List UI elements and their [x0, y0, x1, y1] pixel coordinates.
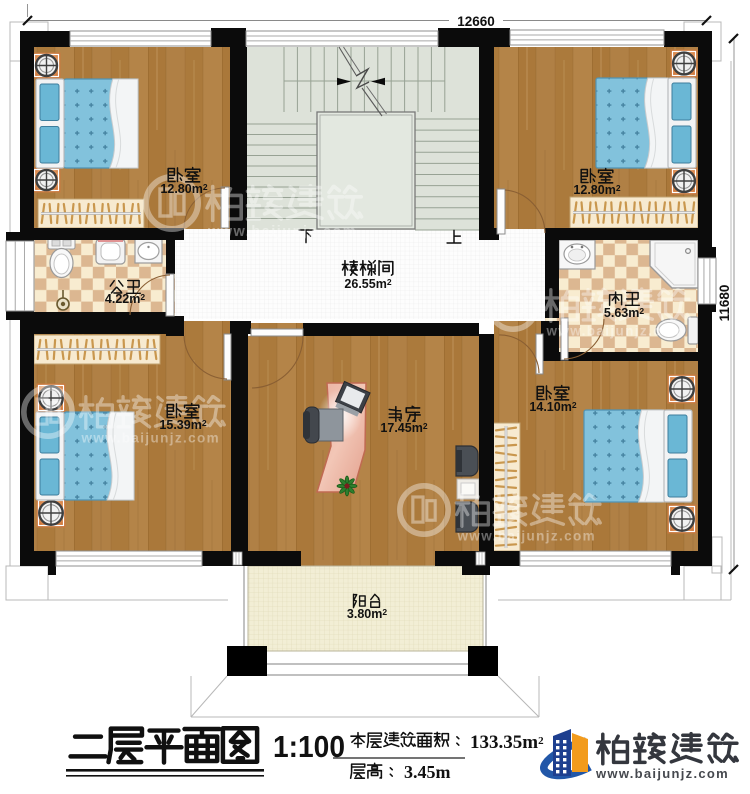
- svg-text:12.80m2: 12.80m2: [160, 182, 207, 196]
- svg-text:www.baijunjz.com: www.baijunjz.com: [545, 324, 685, 339]
- svg-text:11680: 11680: [717, 285, 732, 322]
- svg-text:5.63m2: 5.63m2: [604, 306, 644, 320]
- svg-text:26.55m2: 26.55m2: [344, 277, 391, 291]
- svg-text:133.35m2: 133.35m2: [470, 732, 544, 753]
- svg-text:www.baijunjz.com: www.baijunjz.com: [595, 766, 729, 781]
- svg-text:3.80m2: 3.80m2: [347, 607, 387, 621]
- svg-text:www.baijunjz.com: www.baijunjz.com: [80, 431, 220, 446]
- svg-text:14.10m2: 14.10m2: [529, 400, 576, 414]
- svg-text:www.baijunjz.com: www.baijunjz.com: [456, 529, 596, 544]
- svg-text:12.80m2: 12.80m2: [573, 183, 620, 197]
- svg-text:15.39m2: 15.39m2: [159, 418, 206, 432]
- svg-text:17.45m2: 17.45m2: [380, 421, 427, 435]
- svg-text:3.45m: 3.45m: [404, 762, 451, 782]
- svg-text:www.baijunjz.com: www.baijunjz.com: [207, 224, 357, 240]
- svg-text:1:100: 1:100: [273, 729, 345, 764]
- svg-text:4.22m2: 4.22m2: [105, 292, 145, 306]
- svg-text:12660: 12660: [457, 14, 495, 29]
